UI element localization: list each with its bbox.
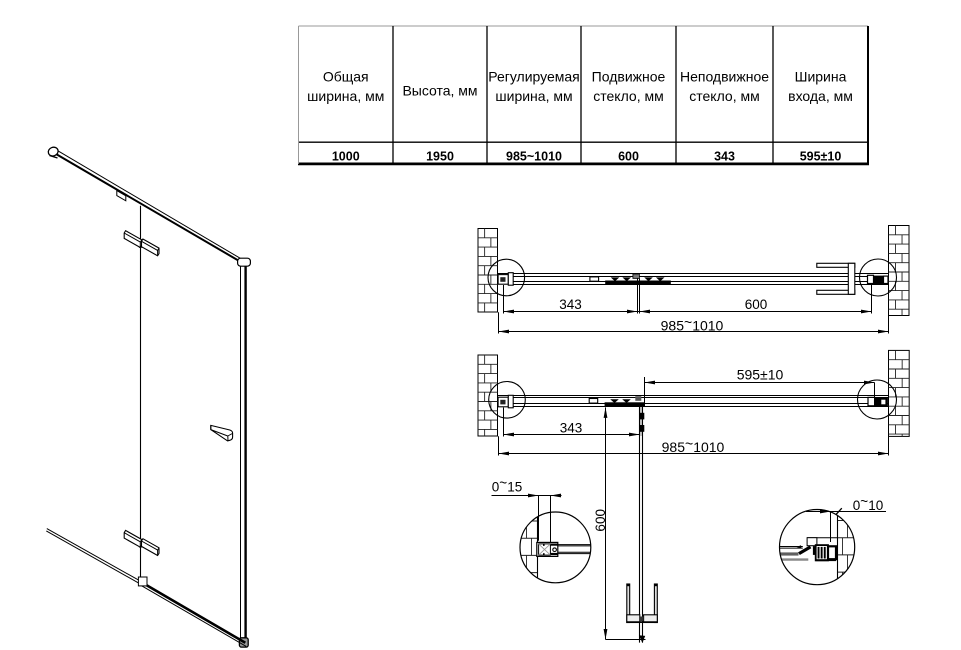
svg-text:343: 343 (560, 421, 583, 436)
svg-text:600: 600 (618, 150, 639, 164)
svg-text:стекло, мм: стекло, мм (689, 88, 759, 104)
svg-text:0~10: 0~10 (853, 494, 883, 513)
svg-text:985~1010: 985~1010 (506, 150, 562, 164)
svg-text:985~1010: 985~1010 (661, 314, 724, 334)
svg-text:343: 343 (559, 297, 582, 312)
svg-text:ширина, мм: ширина, мм (307, 88, 384, 104)
svg-text:Общая: Общая (323, 68, 369, 84)
svg-text:Ширина: Ширина (795, 68, 847, 84)
svg-text:Регулируемая: Регулируемая (488, 68, 580, 84)
svg-text:Высота, мм: Высота, мм (402, 83, 477, 99)
svg-text:ширина, мм: ширина, мм (495, 88, 572, 104)
svg-text:595±10: 595±10 (800, 150, 842, 164)
svg-text:входа, мм: входа, мм (788, 88, 853, 104)
svg-text:595±10: 595±10 (737, 367, 784, 383)
svg-text:600: 600 (593, 509, 608, 532)
svg-text:343: 343 (714, 150, 735, 164)
svg-text:1950: 1950 (426, 150, 454, 164)
svg-text:стекло, мм: стекло, мм (593, 88, 663, 104)
svg-text:985~1010: 985~1010 (662, 435, 725, 455)
svg-text:0~15: 0~15 (492, 475, 522, 494)
svg-text:Подвижное: Подвижное (592, 68, 666, 84)
svg-text:600: 600 (745, 297, 768, 312)
svg-text:Неподвижное: Неподвижное (680, 68, 769, 84)
svg-text:1000: 1000 (332, 150, 360, 164)
